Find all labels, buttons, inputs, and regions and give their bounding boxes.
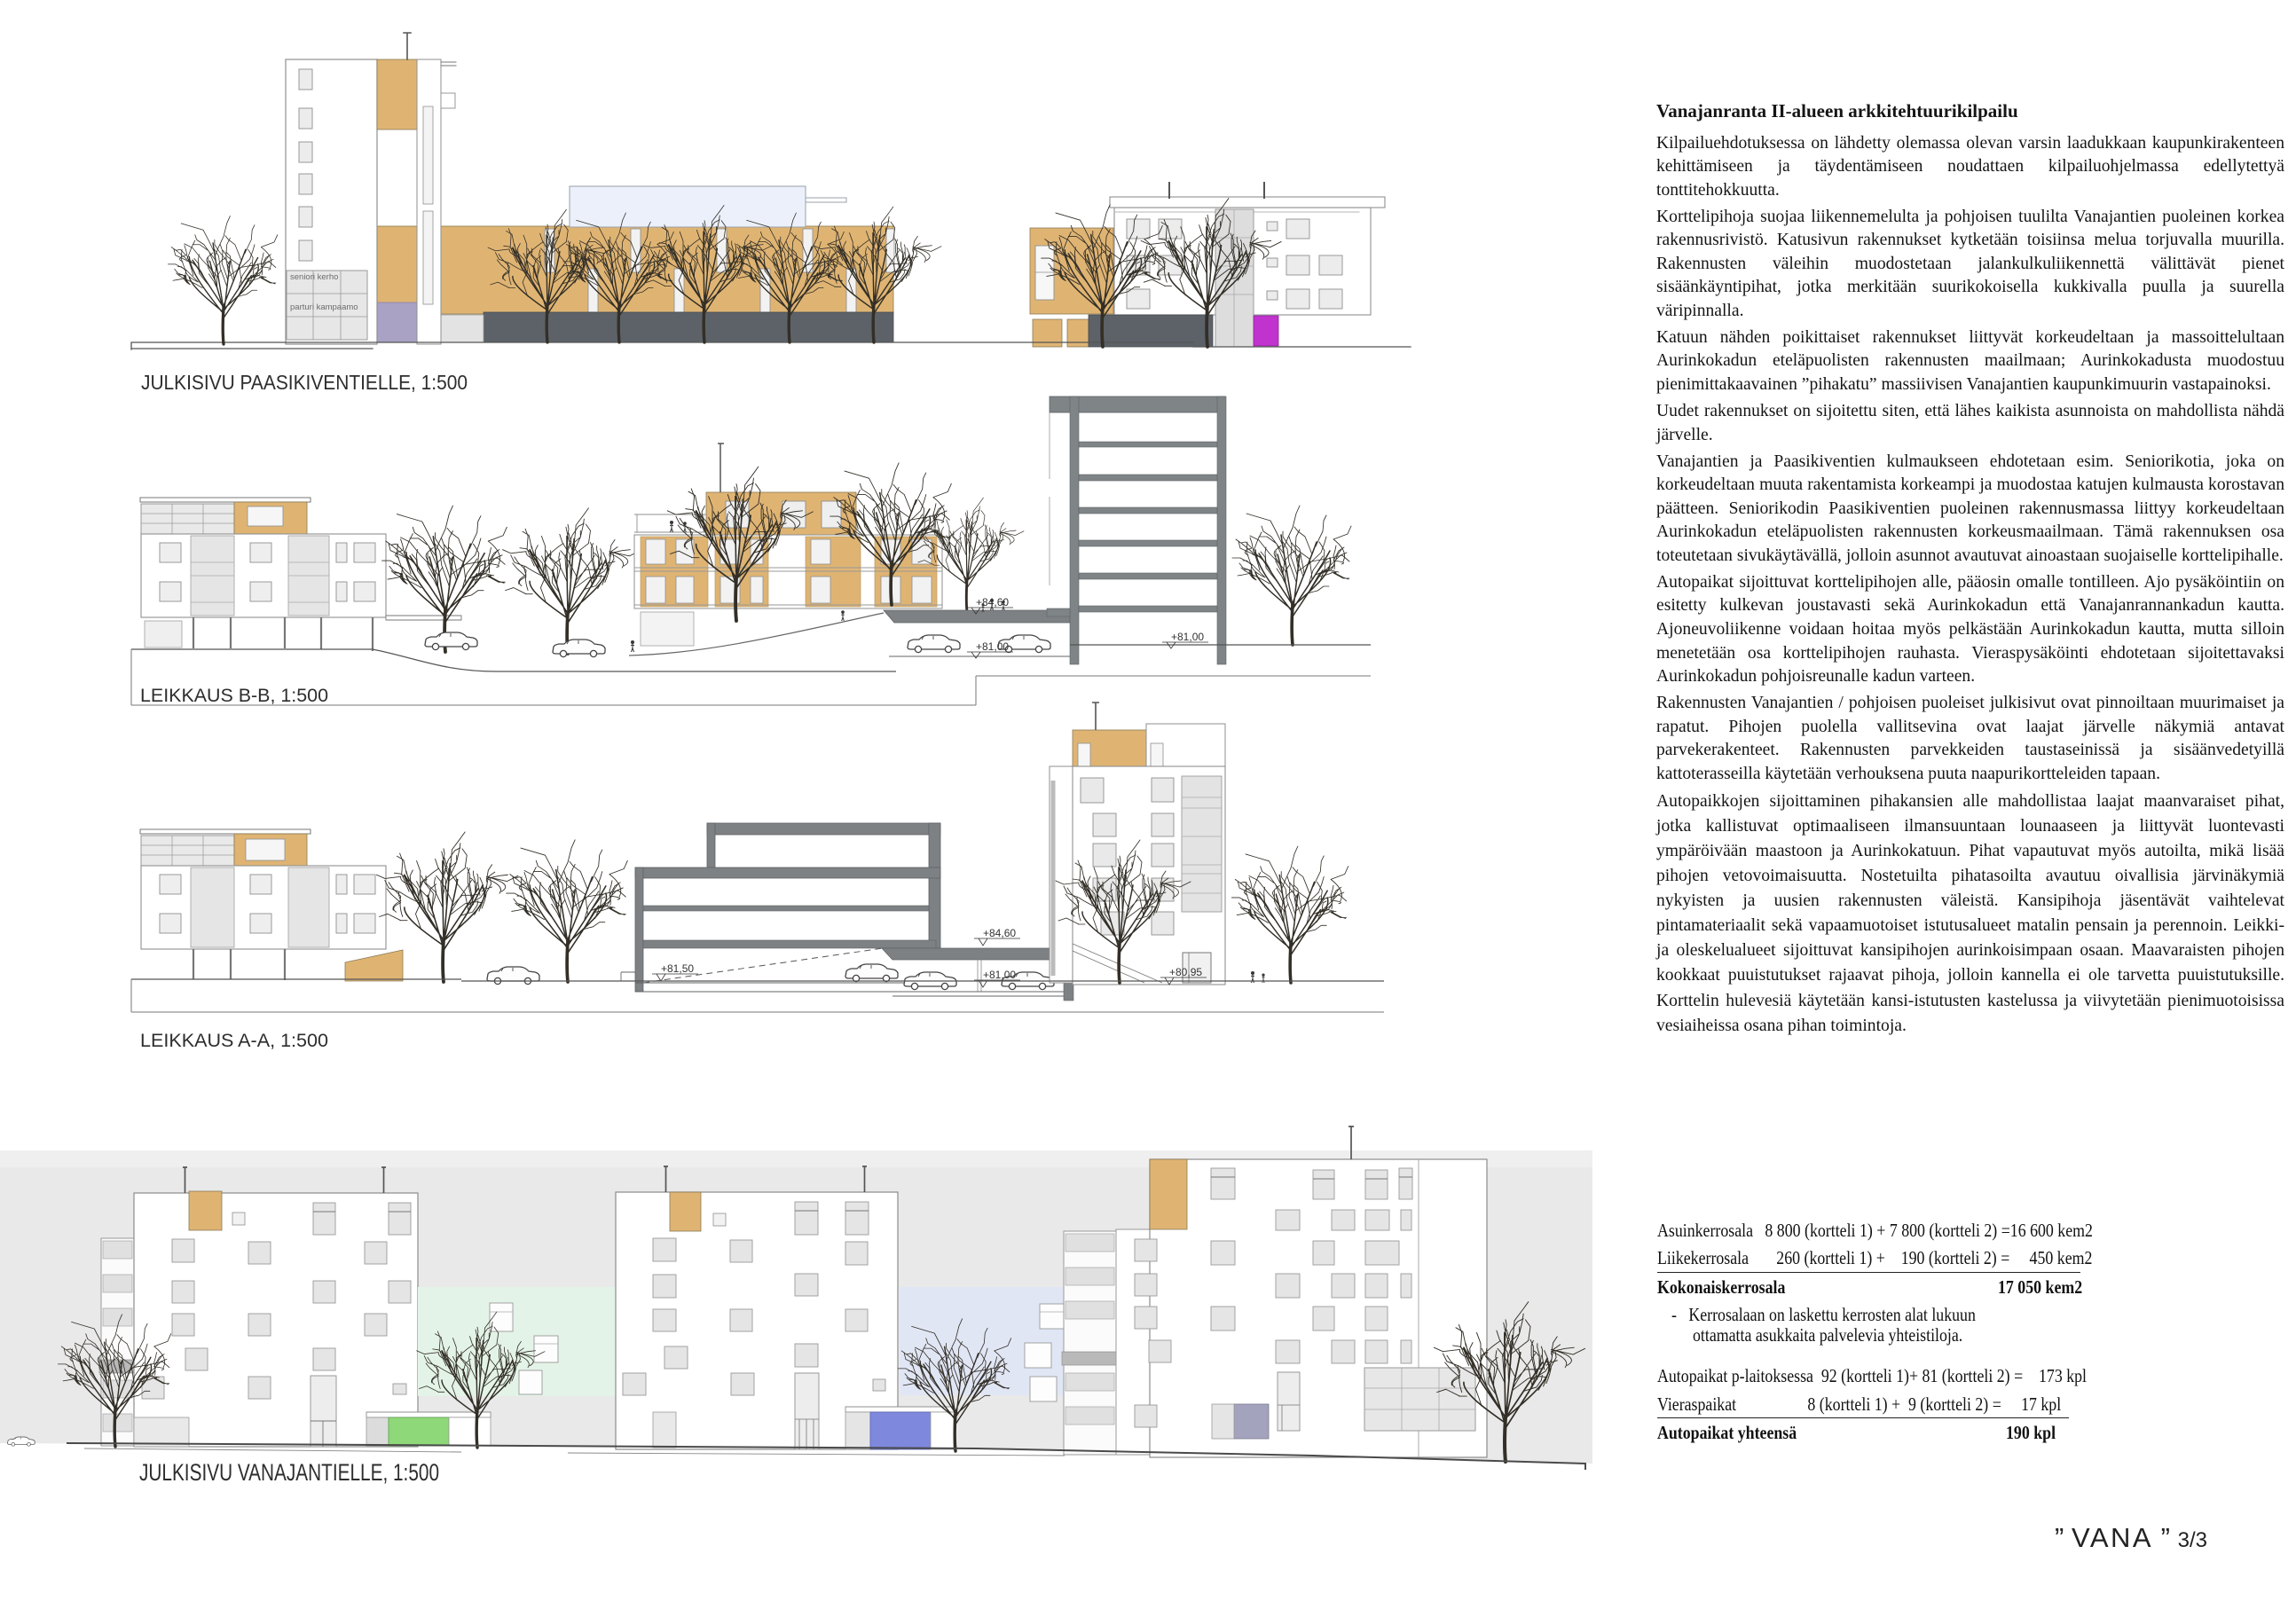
svg-text:seniori kerho: seniori kerho xyxy=(290,272,338,282)
svg-text:JULKISIVU PAASIKIVENTIELLE, 1:: JULKISIVU PAASIKIVENTIELLE, 1:500 xyxy=(141,371,468,394)
svg-text:+80,95: +80,95 xyxy=(1169,966,1202,978)
svg-text:JULKISIVU VANAJANTIELLE, 1:500: JULKISIVU VANAJANTIELLE, 1:500 xyxy=(139,1459,439,1486)
svg-text:LEIKKAUS A-A, 1:500: LEIKKAUS A-A, 1:500 xyxy=(140,1031,328,1051)
svg-text:+84,60: +84,60 xyxy=(983,927,1016,939)
svg-text:+81,00: +81,00 xyxy=(983,969,1016,981)
svg-text:LEIKKAUS B-B, 1:500: LEIKKAUS B-B, 1:500 xyxy=(140,686,328,706)
svg-text:+81,00: +81,00 xyxy=(1171,631,1204,643)
svg-text:parturi kampaamo: parturi kampaamo xyxy=(290,302,358,312)
svg-text:+81,50: +81,50 xyxy=(661,962,694,975)
svg-text:+81,00: +81,00 xyxy=(976,640,1009,653)
svg-text:+84,60: +84,60 xyxy=(976,596,1009,608)
